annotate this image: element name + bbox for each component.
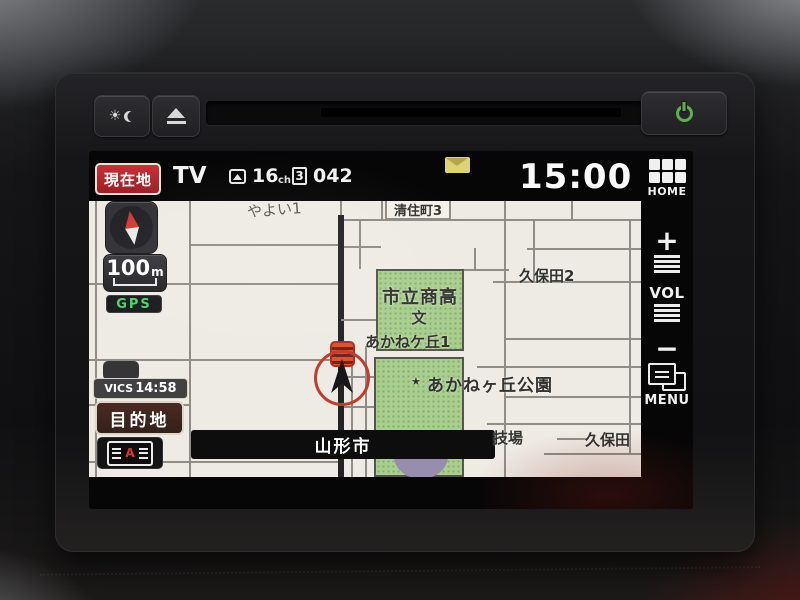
clock: 15:00	[519, 157, 632, 197]
power-icon	[676, 105, 693, 122]
power-button[interactable]	[641, 91, 727, 135]
map-road	[571, 201, 573, 219]
tv-signal-icon	[229, 169, 246, 184]
district-label-akanegaoka1: あかねケ丘1	[365, 331, 450, 352]
volume-label: VOL	[641, 284, 693, 302]
channel-unit: ch	[278, 175, 291, 186]
map-road	[344, 246, 381, 248]
eject-button[interactable]	[152, 95, 200, 137]
vics-label: VICS	[104, 382, 133, 395]
av-button[interactable]: A	[97, 437, 163, 469]
map-road	[544, 453, 641, 455]
subchannel-number: 042	[313, 165, 353, 187]
source-label: TV	[173, 163, 207, 189]
scale-unit: m	[151, 265, 164, 279]
menu-windows-icon	[648, 363, 686, 391]
district-label-kubota2: 久保田2	[519, 265, 574, 286]
city-name-bar: 山形市	[191, 430, 495, 459]
destination-button[interactable]: 目的地	[95, 401, 184, 435]
district-label-kiyozumi: 清住町3	[385, 201, 451, 220]
map-road	[95, 201, 97, 477]
home-button[interactable]: HOME	[641, 159, 693, 198]
vics-time: 14:58	[135, 381, 176, 396]
map-road	[381, 201, 383, 219]
disc-slot-opening	[321, 108, 621, 117]
mail-icon	[445, 157, 470, 173]
gps-status-badge: GPS	[106, 295, 162, 313]
crescent-moon-icon	[124, 111, 135, 122]
stadium-label: 技場	[493, 427, 523, 448]
disc-slot[interactable]	[206, 101, 676, 125]
map-road	[504, 396, 641, 398]
home-label: HOME	[641, 185, 693, 198]
menu-button[interactable]: MENU	[641, 363, 693, 408]
map-road	[504, 338, 641, 340]
scale-value: 100	[106, 258, 150, 279]
district-label-yayoi: やよい1	[246, 201, 302, 222]
map-road	[189, 244, 341, 246]
map-canvas[interactable]: やよい1 清住町3 久保田2 市立商高 文 あかねケ丘1 ★ あかねヶ丘公園 山…	[89, 201, 641, 477]
school-name-label: 市立商高	[378, 283, 462, 309]
map-road	[341, 319, 376, 321]
channel-number: 16	[252, 165, 278, 187]
volume-down-button[interactable]: −	[641, 335, 693, 363]
map-road	[487, 423, 641, 425]
map-road	[477, 366, 641, 368]
av-letter: A	[125, 447, 134, 459]
volume-up-bars-icon	[641, 255, 693, 273]
map-road	[359, 219, 361, 269]
map-road	[629, 219, 631, 453]
park-star-icon: ★	[411, 375, 421, 388]
eject-icon	[167, 108, 186, 124]
map-road	[474, 248, 476, 269]
volume-down-bars-icon	[641, 304, 693, 322]
sun-icon: ☀	[109, 109, 122, 123]
softkey-panel: HOME + VOL − MENU	[641, 151, 693, 509]
car-navigation-head-unit: ☀ 現在地 TV 16 ch 3 042 15:00 HOME +	[55, 72, 755, 552]
volume-up-button[interactable]: +	[641, 227, 693, 255]
touchscreen: 現在地 TV 16 ch 3 042 15:00 HOME + VOL −	[89, 151, 693, 509]
school-symbol: 文	[404, 307, 434, 328]
compass-icon	[107, 203, 156, 252]
home-grid-icon	[641, 159, 693, 183]
scale-bracket-icon	[113, 278, 157, 286]
current-location-button[interactable]: 現在地	[95, 163, 161, 195]
av-screen-icon: A	[107, 441, 153, 466]
compass-button[interactable]	[105, 201, 158, 254]
map-road	[557, 438, 587, 440]
vics-time-badge: VICS 14:58	[93, 378, 188, 399]
brightness-button[interactable]: ☀	[94, 95, 150, 137]
map-road	[344, 406, 374, 408]
district-label-kubota: 久保田	[585, 429, 630, 450]
map-road	[527, 248, 641, 250]
map-scale-button[interactable]: 100 m	[103, 254, 167, 292]
menu-label: MENU	[641, 393, 693, 408]
preset-number-box: 3	[292, 167, 307, 185]
park-name-label: あかねヶ丘公園	[427, 371, 553, 396]
dashboard-stitching	[40, 566, 760, 576]
